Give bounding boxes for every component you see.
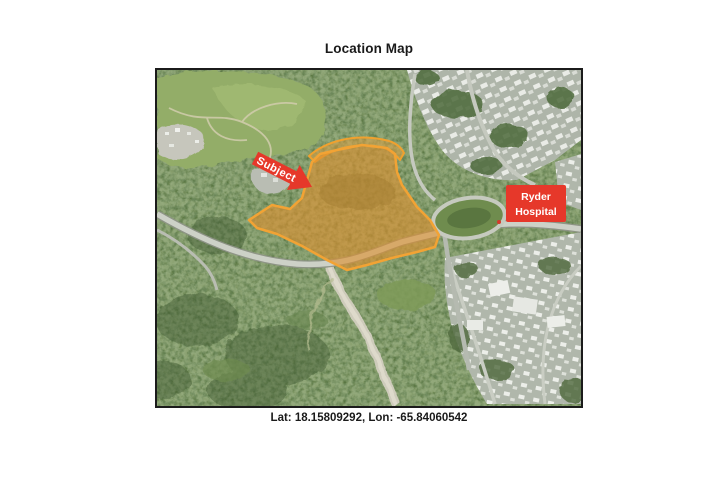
map-marker-dot bbox=[497, 220, 501, 224]
satellite-image: Subject Ryder Hospital bbox=[157, 70, 581, 406]
hospital-label-line1: Ryder bbox=[521, 191, 551, 203]
coordinates-caption: Lat: 18.15809292, Lon: -65.84060542 bbox=[155, 412, 583, 424]
page-title: Location Map bbox=[155, 41, 583, 56]
hospital-callout: Ryder Hospital bbox=[506, 185, 566, 222]
location-map: Subject Ryder Hospital bbox=[155, 68, 583, 408]
document-page: Location Map bbox=[0, 0, 720, 480]
hospital-label-line2: Hospital bbox=[515, 206, 557, 218]
